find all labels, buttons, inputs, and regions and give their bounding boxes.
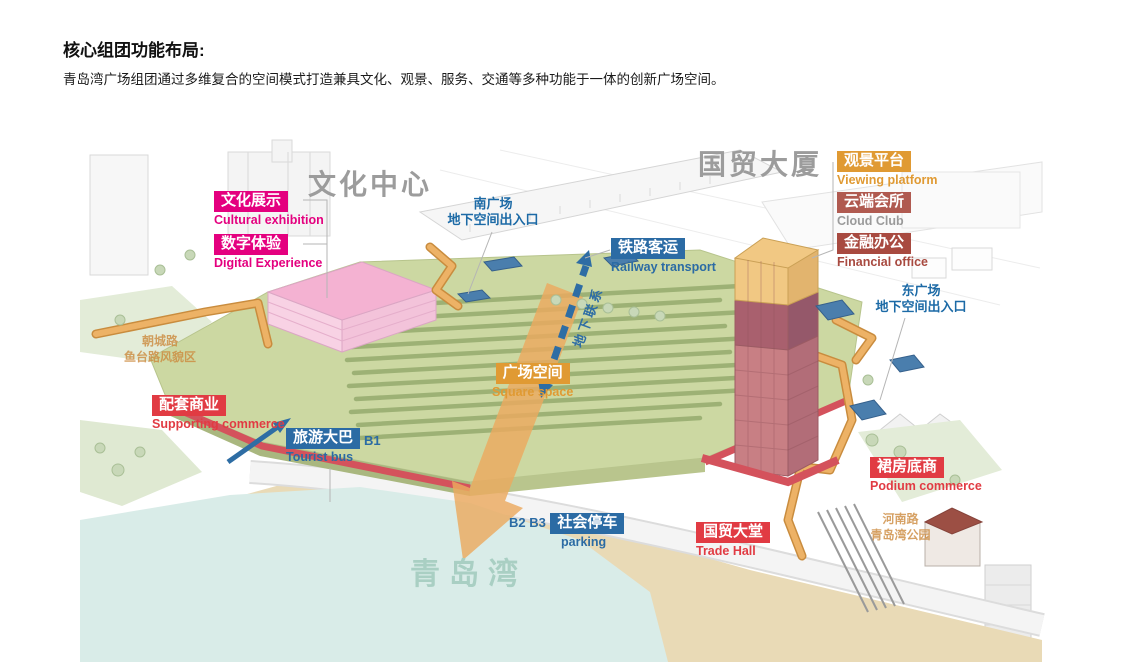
podium-commerce-en: Podium commerce — [870, 480, 982, 494]
note-south-square: 南广场 地下空间出入口 — [427, 196, 559, 229]
label-cloud-club: 云端会所 Cloud Club — [837, 192, 911, 228]
label-digital-experience: 数字体验 Digital Experience — [214, 234, 322, 270]
railway-transport-en: Railway transport — [611, 261, 716, 275]
label-viewing-platform: 观景平台 Viewing platform — [837, 151, 937, 187]
trade-tower-title: 国贸大厦 — [698, 150, 822, 181]
page-subtitle: 青岛湾广场组团通过多维复合的空间模式打造兼具文化、观景、服务、交通等多种功能于一… — [63, 68, 1073, 88]
viewing-platform-en: Viewing platform — [837, 174, 937, 188]
cloud-club-en: Cloud Club — [837, 215, 911, 229]
tourist-bus-level: B1 — [364, 433, 381, 448]
south-square-line1: 南广场 — [427, 196, 559, 212]
header: 核心组团功能布局: 青岛湾广场组团通过多维复合的空间模式打造兼具文化、观景、服务… — [63, 36, 1073, 88]
label-square-space: 广场空间 Square space — [492, 363, 573, 399]
viewing-platform-tag: 观景平台 — [837, 151, 911, 172]
label-tourist-bus: 旅游大巴B1 Tourist bus — [286, 428, 381, 464]
label-parking: B2 B3 社会停车 parking — [509, 513, 624, 549]
page: 核心组团功能布局: 青岛湾广场组团通过多维复合的空间模式打造兼具文化、观景、服务… — [0, 0, 1122, 662]
digital-experience-tag: 数字体验 — [214, 234, 288, 255]
financial-office-tag: 金融办公 — [837, 233, 911, 254]
trade-hall-tag: 国贸大堂 — [696, 522, 770, 543]
cultural-exhibition-en: Cultural exhibition — [214, 214, 324, 228]
henan-road-line2: 青岛湾公园 — [853, 528, 948, 544]
parking-tag: 社会停车 — [550, 513, 624, 534]
henan-road-line1: 河南路 — [853, 512, 948, 528]
chaocheng-road-line2: 鱼台路风貌区 — [100, 350, 220, 366]
chaocheng-road-line1: 朝城路 — [100, 334, 220, 350]
label-supporting-commerce: 配套商业 Supporting commerce — [152, 395, 285, 431]
label-financial-office: 金融办公 Financial office — [837, 233, 928, 269]
label-podium-commerce: 裙房底商 Podium commerce — [870, 457, 982, 493]
parking-en: parking — [561, 536, 624, 550]
note-chaocheng-road: 朝城路 鱼台路风貌区 — [100, 334, 220, 365]
digital-experience-en: Digital Experience — [214, 257, 322, 271]
cloud-club-tag: 云端会所 — [837, 192, 911, 213]
cultural-exhibition-tag: 文化展示 — [214, 191, 288, 212]
podium-commerce-tag: 裙房底商 — [870, 457, 944, 478]
qingdao-bay-title: 青岛湾 — [410, 558, 527, 591]
east-square-line2: 地下空间出入口 — [855, 299, 987, 315]
supporting-commerce-en: Supporting commerce — [152, 418, 285, 432]
page-title: 核心组团功能布局: — [63, 36, 1073, 61]
note-east-square: 东广场 地下空间出入口 — [855, 283, 987, 316]
tourist-bus-en: Tourist bus — [286, 451, 381, 465]
east-square-line1: 东广场 — [855, 283, 987, 299]
note-henan-road: 河南路 青岛湾公园 — [853, 512, 948, 543]
square-space-en: Square space — [492, 386, 573, 400]
label-railway-transport: 铁路客运 Railway transport — [611, 238, 716, 274]
square-space-tag: 广场空间 — [496, 363, 570, 384]
south-square-line2: 地下空间出入口 — [427, 212, 559, 228]
isometric-diagram: 文化中心 国贸大厦 青岛湾 文化展示 Cultural exhibition 数… — [0, 110, 1122, 662]
tourist-bus-tag: 旅游大巴 — [286, 428, 360, 449]
parking-levels: B2 B3 — [509, 515, 546, 530]
financial-office-en: Financial office — [837, 256, 928, 270]
culture-center-title: 文化中心 — [308, 170, 432, 201]
label-trade-hall: 国贸大堂 Trade Hall — [696, 522, 770, 558]
railway-transport-tag: 铁路客运 — [611, 238, 685, 259]
label-cultural-exhibition: 文化展示 Cultural exhibition — [214, 191, 324, 227]
supporting-commerce-tag: 配套商业 — [152, 395, 226, 416]
trade-hall-en: Trade Hall — [696, 545, 770, 559]
